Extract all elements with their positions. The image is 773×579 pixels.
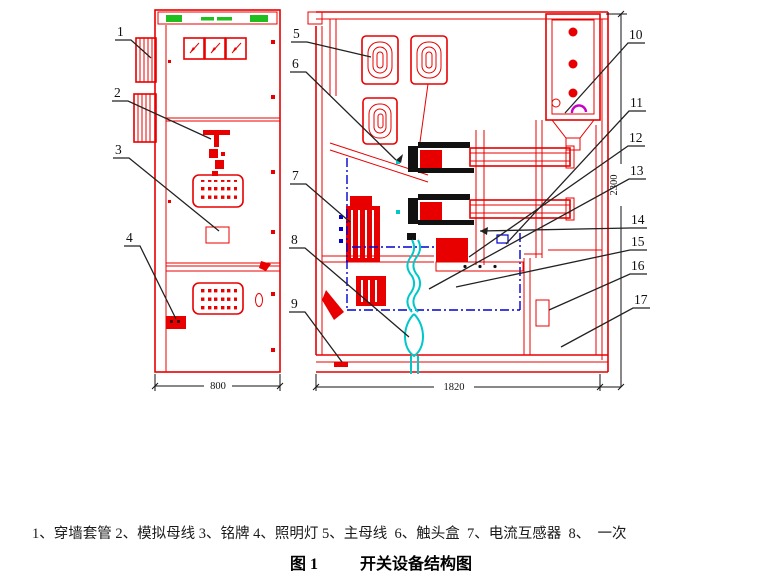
switchgear-structure-drawing: 800 1820 2300 1 2 3 4 5 6 7 8 9 10 11 12… <box>0 0 773 465</box>
svg-text:2: 2 <box>114 85 121 100</box>
svg-text:10: 10 <box>629 27 643 42</box>
meter-panel <box>184 38 246 59</box>
ventilation-grille-lower <box>193 283 243 314</box>
callout-1: 1 <box>115 24 151 58</box>
svg-text:4: 4 <box>126 230 133 245</box>
shutter-mechanism <box>436 238 523 271</box>
door-handle <box>256 294 263 307</box>
dimension-side-depth: 1820 <box>313 374 621 393</box>
figure-caption: 图 1开关设备结构图 <box>0 550 762 574</box>
green-label-right <box>250 15 268 22</box>
svg-text:1: 1 <box>117 24 124 39</box>
callout-4: 4 <box>124 230 176 319</box>
callout-6: 6 <box>290 56 403 163</box>
dimension-height: 2300 <box>606 11 627 390</box>
current-transformer <box>339 196 380 262</box>
callout-16: 16 <box>549 258 647 310</box>
svg-text:5: 5 <box>293 26 300 41</box>
figure-caption-title: 开关设备结构图 <box>360 556 472 573</box>
grounding-busbar <box>334 362 348 367</box>
svg-text:15: 15 <box>631 234 645 249</box>
svg-text:16: 16 <box>631 258 645 273</box>
nameplate-header-strip <box>158 12 277 24</box>
callout-17: 17 <box>561 292 650 347</box>
svg-text:13: 13 <box>630 163 644 178</box>
wall-bushing-upper <box>136 38 156 82</box>
rear-channel <box>546 14 600 150</box>
callout-2: 2 <box>112 85 211 139</box>
ventilation-grille-upper <box>193 175 243 207</box>
svg-text:7: 7 <box>292 168 299 183</box>
callout-11: 11 <box>506 95 646 244</box>
contact-box-upper <box>396 142 574 173</box>
callout-5: 5 <box>291 26 371 57</box>
callout-7: 7 <box>290 168 350 222</box>
top-left-bracket <box>308 12 322 24</box>
svg-text:8: 8 <box>291 232 298 247</box>
bushing-plate <box>476 130 508 265</box>
interlock-assembly <box>572 105 586 113</box>
dimension-front-width: 800 <box>152 374 283 392</box>
side-view-cabinet <box>308 12 608 374</box>
primary-cable <box>405 233 423 374</box>
svg-text:12: 12 <box>629 130 643 145</box>
green-model-text-mark <box>201 17 214 21</box>
svg-text:6: 6 <box>292 56 299 71</box>
figure-caption-label: 图 1 <box>290 556 318 573</box>
main-busbar-coils <box>362 36 447 144</box>
heater <box>536 300 549 326</box>
dim-800: 800 <box>210 381 226 392</box>
figure-page: 800 1820 2300 1 2 3 4 5 6 7 8 9 10 11 12… <box>0 0 773 579</box>
svg-text:9: 9 <box>291 296 298 311</box>
svg-text:17: 17 <box>634 292 648 307</box>
green-label-left <box>166 15 182 22</box>
svg-text:14: 14 <box>631 212 645 227</box>
dim-1820: 1820 <box>444 382 465 393</box>
wall-bushing-lower <box>134 94 156 142</box>
svg-text:11: 11 <box>630 95 643 110</box>
front-view-cabinet <box>134 10 280 372</box>
legend-line-1: 1、穿墙套管 2、模拟母线 3、铭牌 4、照明灯 5、主母线 6、触头盒 7、电… <box>6 524 768 545</box>
svg-text:3: 3 <box>115 142 122 157</box>
secondary-block <box>322 276 386 320</box>
